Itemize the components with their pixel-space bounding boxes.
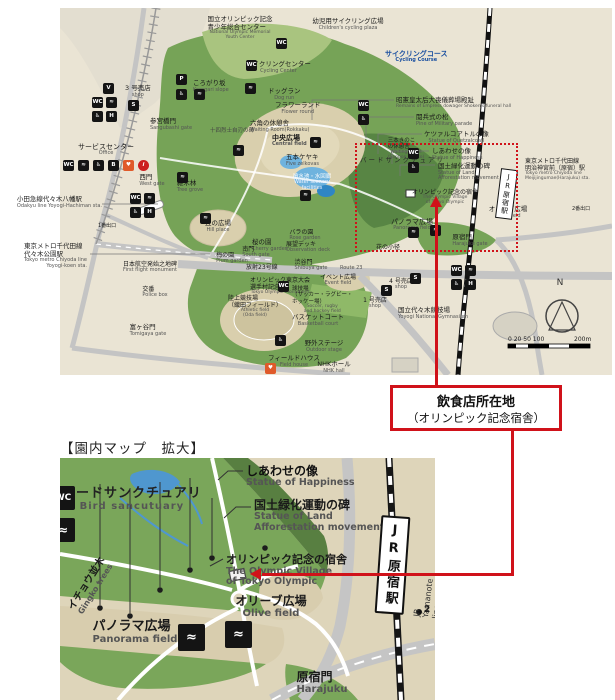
fountain-icon: ≈ (233, 145, 244, 156)
label-subtext: Odakyu line Yoyogi-Hachiman sta. (17, 204, 102, 210)
red-arrow-left-head (250, 568, 261, 580)
label-subtext: Central field (272, 142, 307, 148)
map-label: 国土緑化運動の碑Statue of Land Afforestation mov… (254, 498, 384, 533)
map-label: 渋谷門Shibuya gate (295, 259, 328, 272)
toilet-icon: WC (130, 193, 141, 204)
map-label: フラワーランドFlower round (275, 102, 321, 115)
label-text: 原宿門 (296, 670, 347, 684)
aed-icon: ♥ (265, 363, 276, 374)
shop-icon: S (410, 273, 421, 284)
label-text: 0 20 50 100 (508, 336, 544, 343)
map-label: 展望デッキObservation deck (286, 241, 330, 254)
label-text: 2 (424, 605, 430, 616)
label-subtext: South gate (242, 253, 269, 259)
label-text: しあわせの像 (246, 464, 355, 478)
toilet-icon: WC (60, 486, 75, 510)
label-subtext: Outdoor stage (305, 348, 344, 354)
fountain-icon: ≈ (144, 193, 155, 204)
map-label: イベント広場Event field (320, 274, 356, 287)
label-subtext: First flight monument (123, 268, 177, 274)
shop-icon: S (128, 100, 139, 111)
map-label: 3 号売店shop (125, 85, 151, 98)
map-label: 2番出口 (572, 207, 590, 213)
label-subtext: Cycling Course (385, 58, 448, 64)
map-label: 東京メトロ千代田線 明治神宮前（原宿）駅Tokyo metro Chiyoda … (525, 158, 590, 182)
label-subtext: Statue of Happiness (246, 478, 355, 488)
map-label: 噴水池・水回廊Water scenery facilities (293, 174, 332, 191)
fountain-icon: ≈ (200, 213, 211, 224)
detail-park-map: JR原宿駅 バードサンクチュアリBird sancutuaryしあわせの像Sta… (60, 458, 435, 700)
label-subtext: Observation deck (286, 248, 330, 254)
washstand-icon: H (465, 279, 476, 290)
shop-icon: S (381, 285, 392, 296)
map-label: サービスセンターOffice (78, 143, 134, 157)
map-label: NHKホールNHK hall (317, 361, 351, 374)
map-label: しあわせの像Statue of Happiness (246, 464, 355, 489)
map-label: 野外ステージOutdoor stage (305, 340, 344, 353)
map-label: 六角の休憩舎Waiting Room(Rokkaku) (250, 120, 310, 133)
label-subtext: Tree grove (177, 188, 203, 194)
toilet-icon: WC (278, 281, 289, 292)
label-subtext: Panorama field (93, 634, 178, 645)
wheelchair-icon: ♿ (92, 111, 103, 122)
label-subtext: Office (78, 151, 134, 157)
baby-icon: B (108, 160, 119, 171)
label-text: 1番出口 (98, 224, 116, 230)
red-arrow-up-line (435, 206, 438, 386)
label-text: 200m (574, 336, 591, 343)
label-subtext: Statue of Land Afforestation movement (254, 512, 384, 533)
label-subtext: West gate (139, 182, 164, 188)
map-label: 西門West gate (139, 174, 164, 187)
map-label: 幼児用サイクリング広場Children's cycling plaza (312, 18, 383, 31)
vending-icon: V (103, 83, 114, 94)
label-subtext: Sangubashi gate (150, 126, 192, 132)
map-label: 五本ケヤキFive zelkovas (286, 154, 319, 167)
wheelchair-icon: ♿ (93, 160, 104, 171)
fountain-icon: ≈ (177, 172, 188, 183)
map-label: 閲兵式の松Pine of Military parade (416, 114, 472, 127)
label-text: 十四烈士自刃の碑 (210, 128, 254, 134)
label-subtext: Pine of Military parade (416, 122, 472, 128)
label-subtext: Harajuku (296, 684, 347, 695)
toilet-icon: WC (276, 38, 287, 49)
map-label: 200m (574, 336, 591, 343)
label-subtext: National Olympic Memorial Youth Center (208, 31, 273, 41)
map-label: 球技場 （サッカー・ラグビー・ ホッケー場）Soccer, rugby and … (292, 286, 353, 315)
fountain-icon: ≈ (194, 89, 205, 100)
map-label: 小田急線代々木八幡駅Odakyu line Yoyogi-Hachiman st… (17, 196, 102, 209)
toilet-icon: WC (246, 60, 257, 71)
map-label: バラの園Rose garden (289, 229, 320, 242)
label-subtext: Water scenery facilities (293, 180, 332, 191)
label-subtext: Event field (320, 281, 356, 287)
map-label: 放射23号線 (246, 264, 278, 271)
parking-icon: P (176, 74, 187, 85)
label-subtext: Shibuya gate (295, 266, 328, 272)
map-label: 富ヶ谷門Tomigaya gate (130, 324, 167, 337)
label-text: 球技場 （サッカー・ラグビー・ ホッケー場） (292, 286, 353, 305)
wheelchair-icon: ♿ (130, 207, 141, 218)
washstand-icon: H (106, 111, 117, 122)
map-label: 交番Police box (142, 286, 167, 299)
section-title: 【園内マップ 拡大】 (60, 437, 205, 457)
label-text: 東京メトロ千代田線 代々木公園駅 (24, 243, 87, 258)
label-subtext: shop (389, 285, 413, 291)
label-text: N (557, 278, 564, 289)
label-subtext: Basketball court (292, 322, 344, 328)
info-icon: i (138, 160, 149, 171)
fountain-icon: ≈ (178, 624, 205, 651)
map-label: パノラマ広場Panorama field (93, 619, 178, 645)
red-connector-vertical (511, 429, 514, 575)
label-subtext: Plum garden (216, 259, 248, 265)
map-label: 1番出口 (98, 224, 116, 230)
fountain-icon: ≈ (300, 190, 311, 201)
wheelchair-icon: ♿ (451, 279, 462, 290)
toilet-icon: WC (451, 265, 462, 276)
label-text: Route 23 (340, 266, 362, 272)
map-label: バードサンクチュアリBird sancutuary (62, 486, 202, 512)
label-subtext: Tokyo metro Chiyoda line Meijijingumae(H… (525, 172, 590, 182)
label-text: オリーブ広場 (235, 594, 306, 608)
fountain-icon: ≈ (225, 621, 252, 648)
fountain-icon: ≈ (78, 160, 89, 171)
label-text: 国土緑化運動の碑 (254, 498, 384, 512)
map-label: 南門South gate (242, 246, 269, 259)
map-label: ドッグランDog run (268, 88, 301, 101)
toilet-icon: WC (63, 160, 74, 171)
fountain-icon: ≈ (310, 137, 321, 148)
label-subtext: shop (363, 304, 387, 310)
label-subtext: Remains of Empress dowager Shoken's fune… (396, 105, 511, 110)
map-label: 東京メトロ千代田線 代々木公園駅Tokyo metro Chiyoda line… (24, 243, 87, 269)
label-subtext: shop (125, 93, 151, 99)
map-label: 2 (424, 605, 430, 616)
label-subtext: Athletic field (Oda field) (228, 309, 282, 319)
label-text: 2番出口 (572, 207, 590, 213)
label-subtext: NHK hall (317, 369, 351, 375)
fountain-icon: ≈ (106, 97, 117, 108)
callout-box: 飲食店所在地 （オリンピック記念宿舎） (390, 385, 562, 431)
map-label: 陸上競技場 （織田フィールド）Athletic field (Oda field… (228, 295, 282, 319)
washstand-icon: H (144, 207, 155, 218)
fountain-icon: ≈ (465, 265, 476, 276)
map-label: 中央広場Central field (272, 134, 307, 148)
map-label: オリーブ広場Olive field (235, 594, 306, 619)
map-label: 0 20 50 100 (508, 336, 544, 343)
callout-title: 飲食店所在地 (437, 391, 515, 410)
main-park-map: JR原宿駅 国立オリンピック記念 青少年総合センターNational Olymp… (60, 8, 612, 375)
map-label: 十四烈士自刃の碑 (210, 128, 254, 134)
map-label: 昭憲皇太后大喪儀葬場殿趾Remains of Empress dowager S… (396, 97, 511, 110)
label-subtext: Flower round (275, 110, 321, 116)
map-label: オリンピック記念の宿舎The Olympic Village of Tokyo … (226, 554, 347, 588)
map-label: サイクリングコースCycling Course (385, 50, 448, 64)
map-label: Route 23 (340, 266, 362, 272)
aed-icon: ♥ (123, 160, 134, 171)
label-text: パノラマ広場 (93, 619, 178, 634)
label-subtext: The Olympic Village of Tokyo Olympic (226, 567, 347, 588)
label-subtext: Bird sancutuary (62, 501, 202, 512)
map-label: 国立オリンピック記念 青少年総合センターNational Olympic Mem… (208, 16, 273, 41)
label-text: バードサンクチュアリ (62, 486, 202, 501)
label-subtext: Waiting Room(Rokkaku) (250, 128, 310, 134)
map-label: 参宮橋門Sangubashi gate (150, 118, 192, 131)
fountain-icon: ≈ (60, 518, 75, 542)
label-subtext: Yoyogi National Gymnasium (398, 315, 468, 321)
map-label: 1 号売店shop (363, 297, 387, 310)
wheelchair-icon: ♿ (176, 89, 187, 100)
label-subtext: Police box (142, 293, 167, 299)
label-subtext: Olive field (235, 608, 306, 619)
label-text: 放射23号線 (246, 264, 278, 271)
label-subtext: Hill place (205, 228, 231, 234)
label-subtext: Tokyo metro Chiyoda line Yoyogi-koen sta… (24, 258, 87, 269)
map-label: 日本航空発始之地碑First flight monument (123, 261, 177, 274)
red-arrow-up-head (430, 196, 442, 207)
label-subtext: Five zelkovas (286, 162, 319, 168)
label-subtext: Children's cycling plaza (312, 26, 383, 32)
label-subtext: Tomigaya gate (130, 332, 167, 338)
map-label: 原宿門Harajuku (296, 670, 347, 695)
callout-subtitle: （オリンピック記念宿舎） (407, 410, 545, 426)
toilet-icon: WC (358, 100, 369, 111)
wheelchair-icon: ♿ (358, 114, 369, 125)
map-label: バスケットコートBasketball court (292, 314, 344, 327)
red-connector-horizontal (262, 573, 514, 576)
map-label: N (557, 278, 564, 289)
toilet-icon: WC (92, 97, 103, 108)
map-label: 国立代々木競技場Yoyogi National Gymnasium (398, 307, 468, 320)
wheelchair-icon: ♿ (275, 335, 286, 346)
page: JR原宿駅 国立オリンピック記念 青少年総合センターNational Olymp… (0, 0, 615, 700)
fountain-icon: ≈ (245, 83, 256, 94)
